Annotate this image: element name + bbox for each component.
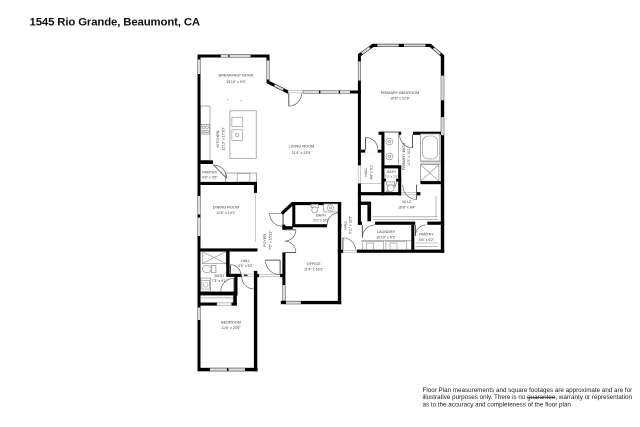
svg-text:16'8" x 8'4": 16'8" x 8'4" [398,206,416,210]
svg-text:BEDROOM: BEDROOM [221,320,241,324]
svg-text:7'2" x 2'5": 7'2" x 2'5" [385,174,399,178]
svg-text:DINING ROOM: DINING ROOM [213,205,239,209]
svg-text:5'11" x 18'5": 5'11" x 18'5" [349,215,353,234]
svg-text:15'10" x 9'9": 15'10" x 9'9" [226,80,246,84]
svg-text:PRIMARY BATH: PRIMARY BATH [402,143,406,171]
svg-text:BATH: BATH [215,274,225,278]
svg-text:11'4" x 16'3": 11'4" x 16'3" [304,268,324,272]
svg-text:PANTRY: PANTRY [419,233,434,237]
svg-text:PRIMARY BEDROOM: PRIMARY BEDROOM [381,91,419,95]
svg-text:4'9" x 4'5": 4'9" x 4'5" [202,176,218,180]
svg-text:11'10" x 17'10": 11'10" x 17'10" [222,127,226,151]
svg-text:LAUNDRY: LAUNDRY [377,230,396,234]
svg-text:21'9" x 23'5": 21'9" x 23'5" [292,151,312,155]
svg-text:5'6" x 5'2": 5'6" x 5'2" [238,264,254,268]
svg-text:HALL: HALL [364,168,368,177]
svg-text:16'8" x 22'8": 16'8" x 22'8" [390,97,410,101]
svg-text:11'9" x 10'1": 11'9" x 10'1" [407,146,411,166]
svg-text:as to the accuracy and complet: as to the accuracy and completeness of t… [423,401,572,408]
svg-text:LIVING ROOM: LIVING ROOM [289,145,315,149]
svg-text:11'6" x 20'5": 11'6" x 20'5" [221,326,241,330]
svg-text:HALL: HALL [343,221,347,230]
svg-text:1545 Rio Grande, Beaumont, CA: 1545 Rio Grande, Beaumont, CA [30,17,201,29]
svg-text:Floor Plan measurements and sq: Floor Plan measurements and square foota… [423,387,633,394]
svg-text:HALL: HALL [241,259,250,263]
svg-text:7'5" x 15'11": 7'5" x 15'11" [269,230,273,250]
svg-text:5'6" x 6'2": 5'6" x 6'2" [419,238,435,242]
svg-text:4'8" x 9'1": 4'8" x 9'1" [369,164,373,180]
svg-text:BATH: BATH [316,214,326,218]
svg-text:11'6" x 14'1": 11'6" x 14'1" [216,211,236,215]
svg-text:illustrative purposes only. Th: illustrative purposes only. There is no … [423,394,633,401]
svg-text:7'3" x 9'1": 7'3" x 9'1" [212,279,228,283]
svg-text:FOYER: FOYER [263,234,267,247]
svg-text:PANTRY: PANTRY [202,170,218,174]
svg-text:KITCHEN: KITCHEN [216,130,220,147]
svg-text:W.I.C: W.I.C [402,200,412,204]
svg-text:10'10" x 6'2": 10'10" x 6'2" [376,236,396,240]
svg-text:9'1" x 5'0": 9'1" x 5'0" [313,218,329,222]
svg-text:BREAKFAST NOOK: BREAKFAST NOOK [219,74,254,78]
svg-text:OFFICE: OFFICE [307,262,322,266]
